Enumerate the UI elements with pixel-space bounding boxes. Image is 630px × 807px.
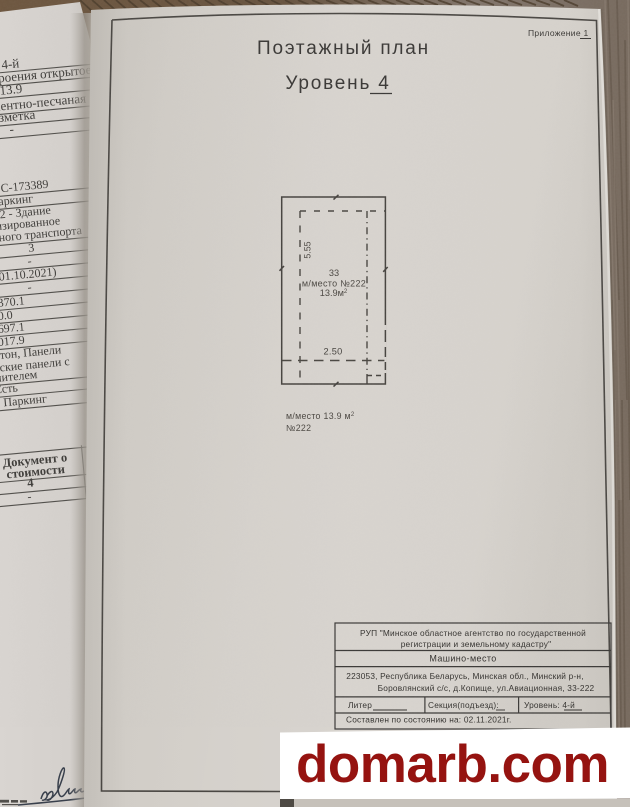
svg-text:domarb.com: domarb.com: [296, 735, 609, 794]
